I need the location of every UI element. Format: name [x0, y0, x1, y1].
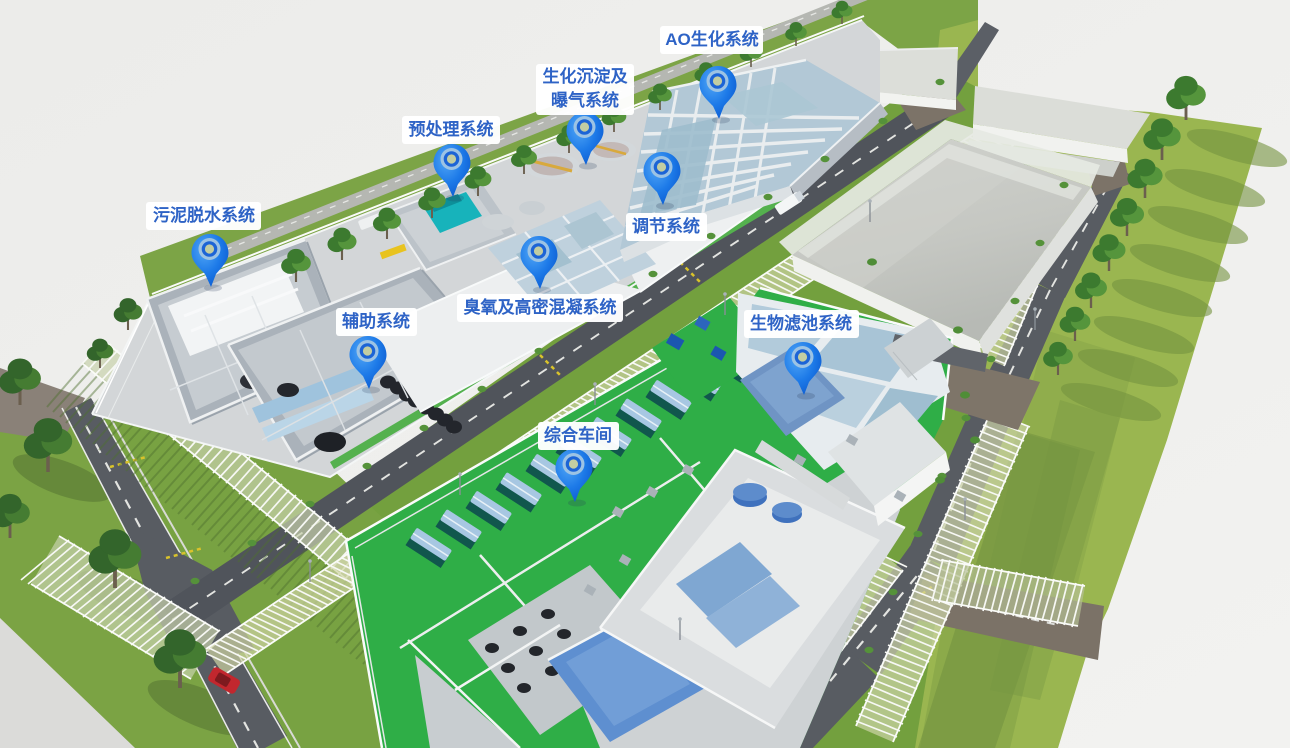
svg-text:污泥脱水系统: 污泥脱水系统: [153, 205, 255, 225]
svg-text:辅助系统: 辅助系统: [342, 311, 410, 331]
svg-text:AO生化系统: AO生化系统: [665, 29, 759, 49]
svg-text:臭氧及高密混凝系统: 臭氧及高密混凝系统: [464, 297, 617, 317]
svg-text:生物滤池系统: 生物滤池系统: [750, 313, 852, 333]
svg-text:综合车间: 综合车间: [544, 425, 612, 445]
svg-text:预处理系统: 预处理系统: [409, 119, 494, 139]
svg-text:曝气系统: 曝气系统: [551, 90, 619, 110]
svg-text:生化沉淀及: 生化沉淀及: [543, 66, 629, 86]
svg-text:调节系统: 调节系统: [632, 216, 700, 236]
